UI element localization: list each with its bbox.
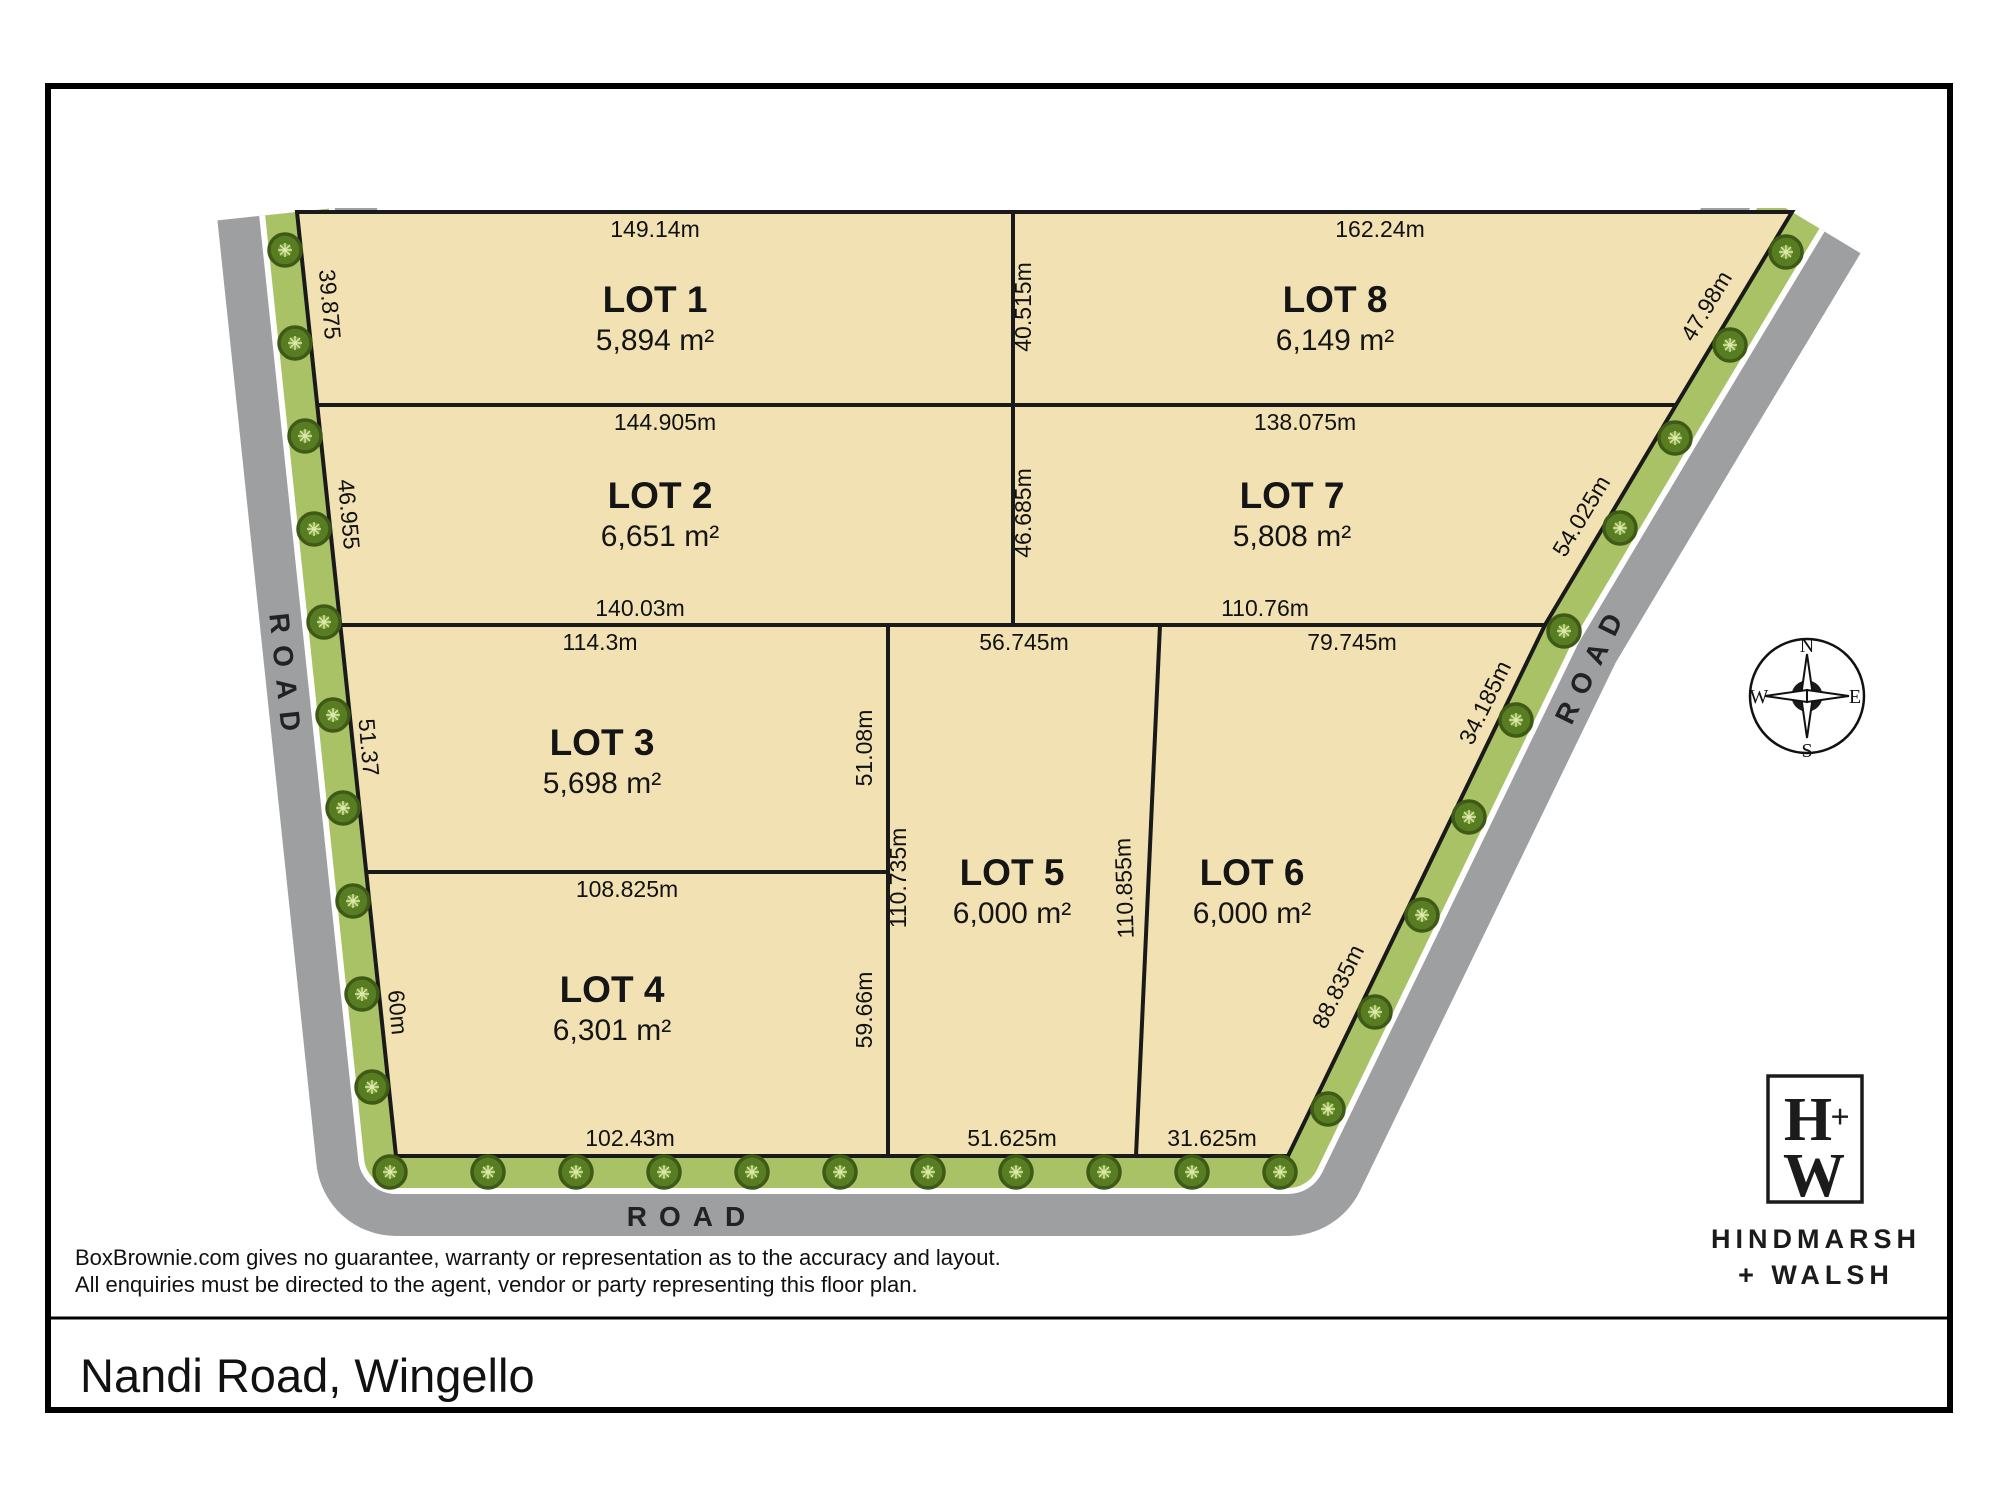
dim-lot7-left: 46.685m	[1010, 468, 1036, 558]
lot7-area: 5,808 m²	[1233, 520, 1351, 553]
dim-lot5-top: 56.745m	[979, 629, 1069, 655]
agency-name-line2: + WALSH	[1738, 1260, 1894, 1290]
dim-lot8-top: 162.24m	[1335, 216, 1425, 242]
compass-south-label: S	[1801, 740, 1812, 762]
logo-monogram-w: W	[1783, 1142, 1845, 1210]
agency-name-line1: HINDMARSH	[1711, 1224, 1921, 1254]
lot7-name: LOT 7	[1240, 475, 1345, 516]
dim-lot7-top: 138.075m	[1254, 409, 1356, 435]
lot5-area: 6,000 m²	[953, 897, 1071, 930]
dim-lot3-left: 51.37	[354, 717, 385, 777]
lot1-name: LOT 1	[603, 279, 708, 320]
lot2-area: 6,651 m²	[601, 520, 719, 553]
lot6-area: 6,000 m²	[1193, 897, 1311, 930]
lot8-name: LOT 8	[1283, 279, 1388, 320]
road-label-bottom: ROAD	[627, 1201, 757, 1232]
lot2-name: LOT 2	[608, 475, 713, 516]
dim-lot1-top: 149.14m	[610, 216, 700, 242]
disclaimer-line2: All enquiries must be directed to the ag…	[75, 1272, 918, 1297]
site-plan: ROAD ROAD ROAD	[0, 0, 2000, 1500]
dim-lot5-right: 110.855m	[1109, 838, 1138, 939]
dim-lot5-bottom: 51.625m	[967, 1125, 1057, 1151]
dim-lot3-top: 114.3m	[562, 629, 637, 655]
dim-lot4-left: 60m	[383, 989, 413, 1036]
footer: BoxBrownie.com gives no guarantee, warra…	[48, 1245, 1950, 1402]
lot4-name: LOT 4	[560, 969, 665, 1010]
lot8-area: 6,149 m²	[1276, 324, 1394, 357]
plan-page: ROAD ROAD ROAD	[0, 0, 2000, 1500]
dim-lot2-top: 144.905m	[614, 409, 716, 435]
lot4-area: 6,301 m²	[553, 1014, 671, 1047]
dim-lot4-top: 108.825m	[576, 876, 678, 902]
lot3-name: LOT 3	[550, 722, 655, 763]
dim-lot5-left: 110.735m	[885, 828, 911, 929]
dim-lot3-right: 51.08m	[851, 710, 877, 787]
compass-east-label: E	[1849, 686, 1861, 708]
dim-lot4-right: 59.66m	[851, 972, 877, 1049]
dim-lot6-top: 79.745m	[1307, 629, 1397, 655]
compass-rose-icon: N E S W	[1750, 635, 1864, 762]
dim-lot8-left: 40.515m	[1010, 262, 1036, 352]
dim-lot7-bottom: 110.76m	[1221, 595, 1309, 621]
dim-lot2-bottom: 140.03m	[595, 595, 685, 621]
dim-lot4-bottom: 102.43m	[585, 1125, 675, 1151]
agency-logo: H + W HINDMARSH + WALSH	[1711, 1076, 1921, 1290]
lot6-name: LOT 6	[1200, 852, 1305, 893]
lot1-area: 5,894 m²	[596, 324, 714, 357]
dim-lot6-bottom: 31.625m	[1167, 1125, 1257, 1151]
lot5-name: LOT 5	[960, 852, 1065, 893]
lot3-area: 5,698 m²	[543, 767, 661, 800]
disclaimer-line1: BoxBrownie.com gives no guarantee, warra…	[75, 1245, 1001, 1270]
compass-west-label: W	[1750, 686, 1769, 708]
page-title: Nandi Road, Wingello	[80, 1349, 535, 1402]
logo-monogram-plus: +	[1830, 1099, 1849, 1136]
compass-north-label: N	[1800, 635, 1814, 657]
